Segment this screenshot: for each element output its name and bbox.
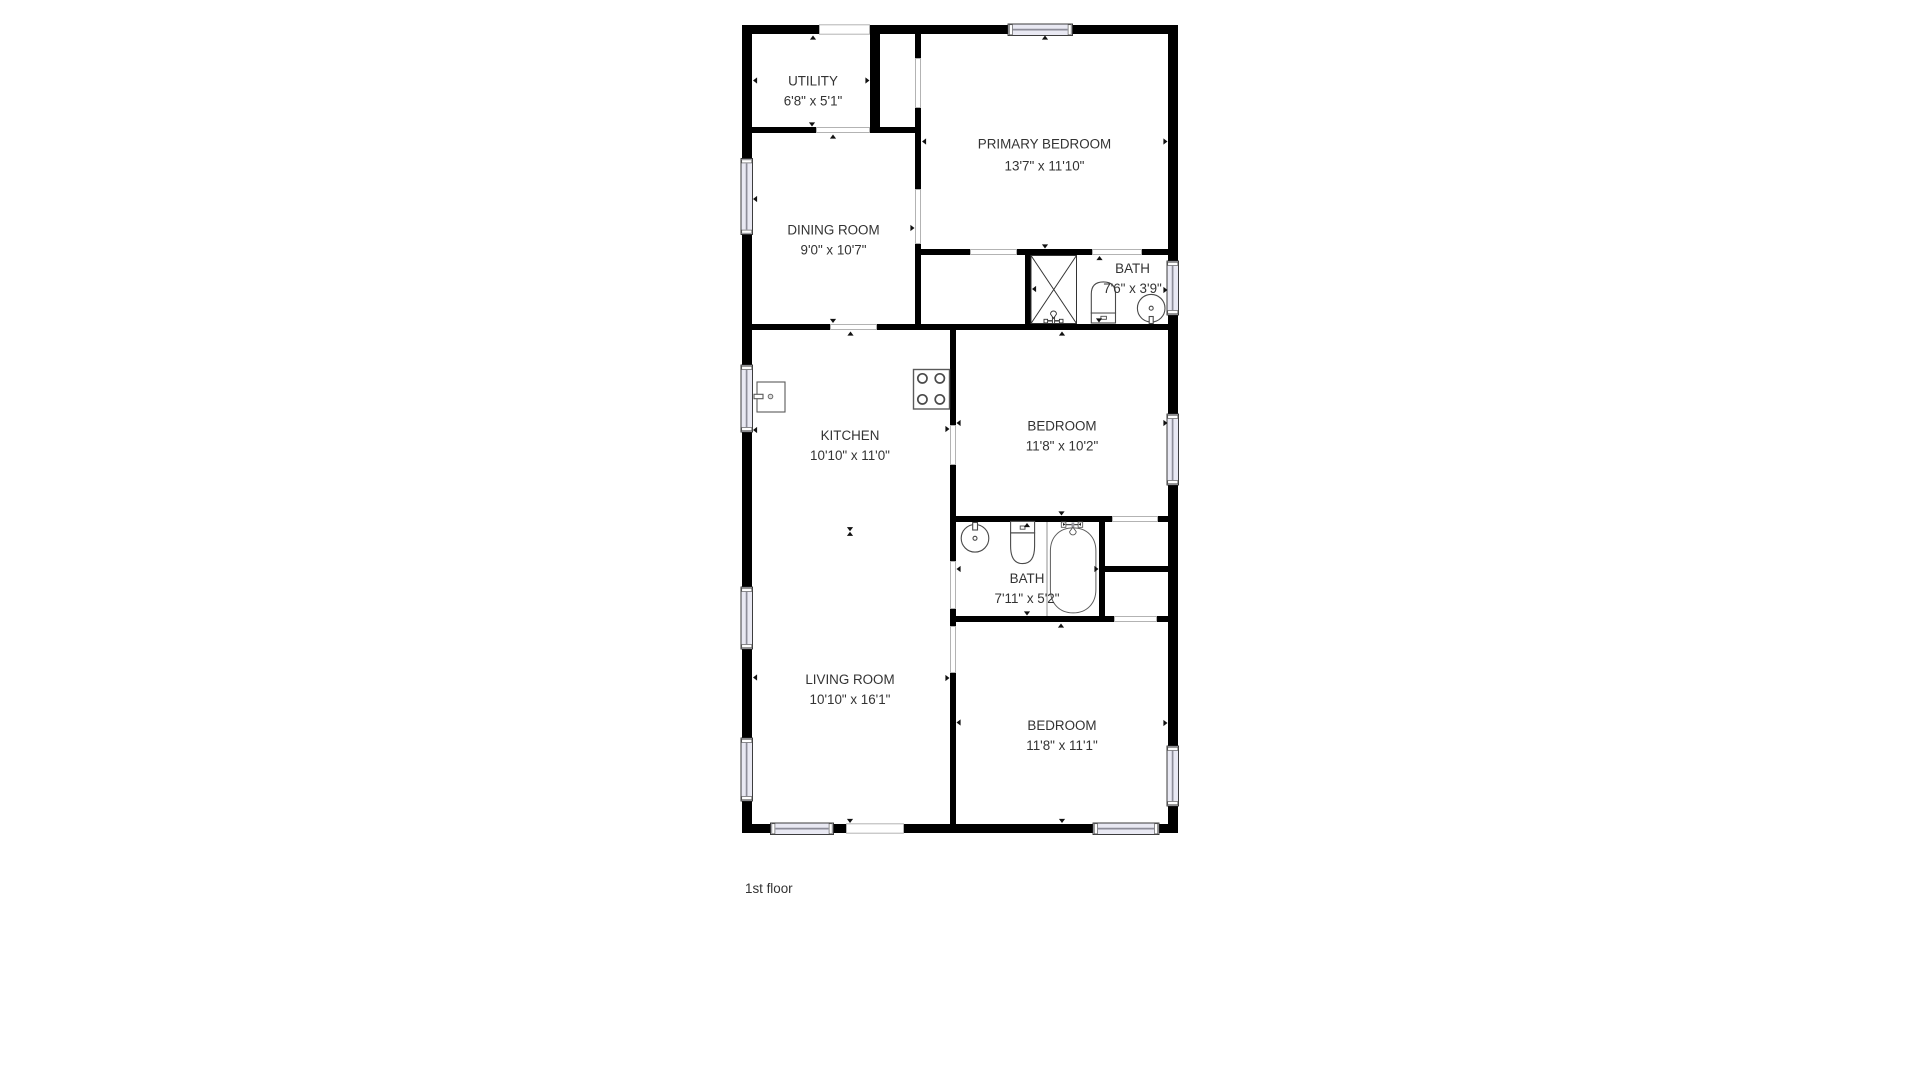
svg-text:UTILITY: UTILITY xyxy=(788,74,838,89)
svg-text:11'8" x 10'2": 11'8" x 10'2" xyxy=(1026,439,1099,454)
svg-text:BATH: BATH xyxy=(1010,571,1045,586)
svg-text:BEDROOM: BEDROOM xyxy=(1027,718,1096,733)
svg-text:10'10" x 16'1": 10'10" x 16'1" xyxy=(810,692,891,707)
svg-text:7'11" x 5'2": 7'11" x 5'2" xyxy=(995,591,1060,606)
svg-text:13'7" x 11'10": 13'7" x 11'10" xyxy=(1005,159,1085,174)
svg-text:9'0" x 10'7": 9'0" x 10'7" xyxy=(801,243,867,258)
svg-text:KITCHEN: KITCHEN xyxy=(821,428,880,443)
svg-text:DINING ROOM: DINING ROOM xyxy=(787,223,879,238)
svg-text:11'8" x 11'1": 11'8" x 11'1" xyxy=(1026,738,1098,753)
svg-text:1st floor: 1st floor xyxy=(745,881,793,896)
svg-text:PRIMARY BEDROOM: PRIMARY BEDROOM xyxy=(978,137,1111,152)
svg-text:6'8" x 5'1": 6'8" x 5'1" xyxy=(784,94,843,109)
svg-text:BATH: BATH xyxy=(1115,261,1150,276)
svg-text:7'6" x 3'9": 7'6" x 3'9" xyxy=(1103,281,1162,296)
svg-text:10'10" x 11'0": 10'10" x 11'0" xyxy=(810,448,890,463)
svg-text:LIVING ROOM: LIVING ROOM xyxy=(805,672,894,687)
svg-text:BEDROOM: BEDROOM xyxy=(1027,419,1096,434)
